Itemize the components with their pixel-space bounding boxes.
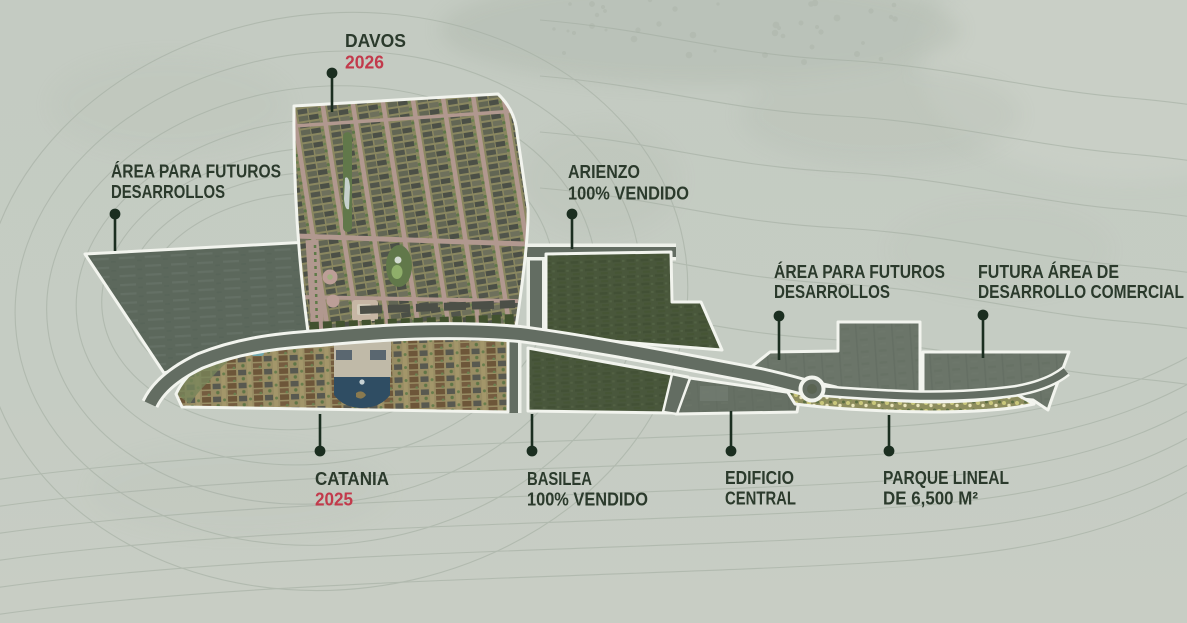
svg-text:2025: 2025 <box>315 490 353 510</box>
svg-text:ÁREA PARA FUTUROS: ÁREA PARA FUTUROS <box>111 161 281 182</box>
svg-text:BASILEA: BASILEA <box>527 469 592 489</box>
svg-text:100% VENDIDO: 100% VENDIDO <box>568 184 689 204</box>
svg-text:100% VENDIDO: 100% VENDIDO <box>527 490 648 510</box>
svg-text:CENTRAL: CENTRAL <box>725 489 796 509</box>
svg-text:2026: 2026 <box>345 53 384 73</box>
svg-text:DESARROLLO COMERCIAL: DESARROLLO COMERCIAL <box>978 282 1184 302</box>
svg-text:PARQUE LINEAL: PARQUE LINEAL <box>883 468 1009 488</box>
svg-text:DAVOS: DAVOS <box>345 31 406 51</box>
svg-text:DESARROLLOS: DESARROLLOS <box>111 182 225 202</box>
svg-text:ÁREA PARA FUTUROS: ÁREA PARA FUTUROS <box>774 261 945 282</box>
svg-text:DESARROLLOS: DESARROLLOS <box>774 282 890 302</box>
svg-text:FUTURA ÁREA DE: FUTURA ÁREA DE <box>978 261 1119 282</box>
svg-text:CATANIA: CATANIA <box>315 469 389 489</box>
svg-text:EDIFICIO: EDIFICIO <box>725 468 794 488</box>
svg-text:DE 6,500 M²: DE 6,500 M² <box>883 489 978 509</box>
svg-text:ARIENZO: ARIENZO <box>568 162 640 182</box>
